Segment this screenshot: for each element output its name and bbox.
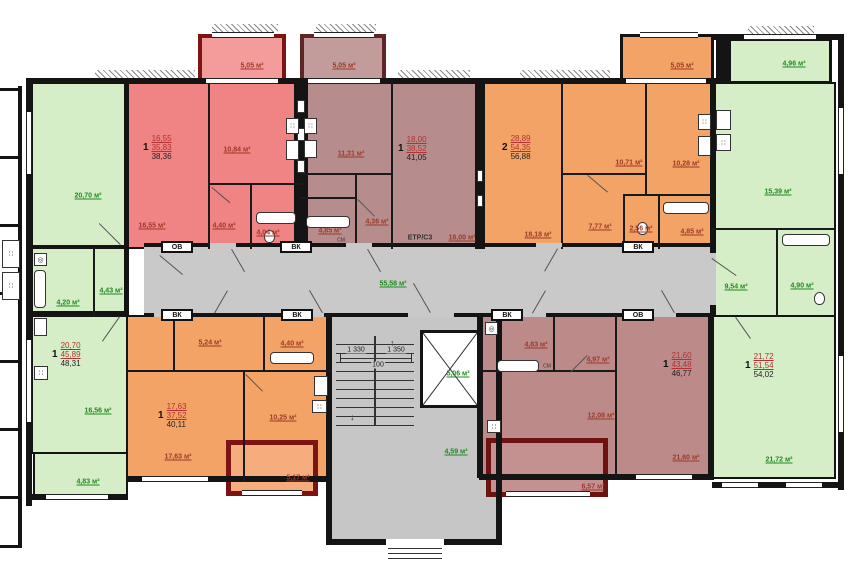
a6-bath-area: 4,83 м² <box>524 342 547 349</box>
wall <box>0 545 18 548</box>
window <box>838 108 844 174</box>
stair-arrow-down: ↓ <box>350 412 355 422</box>
wall <box>708 315 714 479</box>
bathtub-icon <box>256 212 296 224</box>
floor-plan: ↓ ↑ 1 330 1 350 100 ∷ ∷ ∷ ∷ ◎ <box>0 0 856 574</box>
washer-icon: ◎ <box>485 322 498 335</box>
rooms-count: 1 <box>745 360 751 372</box>
balcony-a3 <box>620 34 714 84</box>
fridge-icon <box>698 136 711 156</box>
window <box>26 112 32 174</box>
dimension-label: 1 350 <box>386 347 406 354</box>
a1-hall-area: 4,40 м² <box>212 223 235 230</box>
room-a4-balcony <box>33 452 128 500</box>
door-opening <box>536 243 562 247</box>
living-area: 28,89 <box>511 134 531 143</box>
a3-bath-area: 4,85 м² <box>680 229 703 236</box>
bathtub-icon <box>497 360 539 372</box>
stove-icon: ∷ <box>286 118 299 134</box>
summary-apartment-1: 1 16,55 35,83 38,36 <box>143 134 172 162</box>
riser-label-vk: ВК <box>491 309 523 321</box>
wall <box>0 496 18 499</box>
a3-balcony-area: 5,05 м² <box>670 63 693 70</box>
wall-hatch <box>520 70 610 78</box>
wall <box>716 38 730 84</box>
window <box>744 34 816 40</box>
living-area: 17,63 <box>167 402 187 411</box>
summary-apartment-7: 1 21,72 51,54 54,02 <box>745 352 774 380</box>
overall-area: 38,36 <box>152 152 172 161</box>
overall-area: 48,31 <box>61 359 81 368</box>
a1-living-area: 16,55 м² <box>139 223 166 230</box>
wall <box>26 245 126 249</box>
balcony-a7 <box>728 38 832 84</box>
window <box>640 32 698 38</box>
a7-room-area: 21,72 м² <box>766 457 793 464</box>
a5-bath-area: 4,40 м² <box>280 341 303 348</box>
toilet-icon <box>814 292 825 305</box>
rooms-count: 1 <box>143 142 149 154</box>
partition <box>623 194 714 196</box>
window <box>26 340 32 422</box>
a3-kitchen-area: 10,28 м² <box>673 161 700 168</box>
window <box>242 490 302 496</box>
window <box>626 78 706 84</box>
window <box>838 356 844 432</box>
a3-hall-area: 7,77 м² <box>588 224 611 231</box>
balcony-a1 <box>198 34 286 84</box>
stove-icon: ∷ <box>34 366 48 380</box>
total-area: 38,52 <box>407 144 427 153</box>
wall <box>26 311 126 315</box>
a7-bath-area: 4,90 м² <box>790 283 813 290</box>
partition <box>173 315 175 372</box>
riser-label-vk: ВК <box>281 309 313 321</box>
partition <box>615 315 617 478</box>
elevator-cross-icon <box>423 333 477 405</box>
rooms-count: 1 <box>663 359 669 371</box>
stove-icon: ∷ <box>312 400 327 413</box>
a4-balcony-area: 4,83 м² <box>76 479 99 486</box>
door-opening <box>408 313 454 317</box>
shaft-vent-icon <box>297 160 305 173</box>
entrance-opening <box>386 539 444 545</box>
total-area: 54,35 <box>511 143 531 152</box>
partition <box>561 82 563 249</box>
total-area: 37,52 <box>167 411 187 420</box>
elevator-shaft <box>420 330 480 408</box>
dimension-label: 100 <box>371 362 385 369</box>
partition <box>391 82 393 249</box>
window <box>308 78 380 84</box>
bathtub-icon <box>270 352 314 364</box>
wall-hatch <box>398 70 470 78</box>
dimension-tick <box>340 353 341 363</box>
corridor-area: 55,58 м² <box>380 281 407 288</box>
a1-kitchen-area: 10,84 м² <box>224 147 251 154</box>
bathtub-icon <box>34 270 46 308</box>
partition <box>561 173 647 175</box>
a2-balcony-area: 5,05 м² <box>332 63 355 70</box>
fridge-icon <box>286 140 299 160</box>
window <box>46 494 108 500</box>
sink-icon <box>34 318 47 336</box>
riser-label-vk: ВК <box>161 309 193 321</box>
a4-living-area: 20,70 м² <box>75 193 102 200</box>
entrance-step <box>388 548 442 549</box>
living-area: 20,70 <box>61 341 81 350</box>
wall-hatch <box>316 24 376 32</box>
a1-balcony-area: 5,05 м² <box>240 63 263 70</box>
riser-label-ov: ОВ <box>622 309 654 321</box>
corridor <box>144 245 714 317</box>
partition <box>645 82 647 196</box>
summary-apartment-3: 2 28,89 54,35 56,88 <box>502 134 531 162</box>
wall <box>0 224 18 227</box>
a7-hall-area: 9,54 м² <box>724 284 747 291</box>
a3-wc-area: 2,56 м² <box>629 226 652 233</box>
partition <box>776 230 778 317</box>
living-area: 16,55 <box>152 134 172 143</box>
window <box>786 482 822 488</box>
washer-icon: ◎ <box>34 253 47 266</box>
a4-bath-area: 4,20 м² <box>56 300 79 307</box>
shaft-column <box>475 82 485 249</box>
overall-area: 41,05 <box>407 153 427 162</box>
partition <box>126 370 332 372</box>
window <box>206 78 278 84</box>
riser-label-vk: ВК <box>622 241 654 253</box>
a6-kitchen-area: 12,08 м² <box>588 413 615 420</box>
utility-cell-icon: ∷ <box>2 272 20 300</box>
shaft-vent-icon <box>477 195 483 207</box>
door-opening <box>520 313 546 317</box>
a5-kitchen-area: 10,25 м² <box>270 415 297 422</box>
riser-label-vk: ВК <box>280 241 312 253</box>
living-area: 18,00 <box>407 135 427 144</box>
rooms-count: 1 <box>52 349 58 361</box>
summary-apartment-2: 1 18,00 38,52 41,05 <box>398 135 427 163</box>
living-area: 21,60 <box>672 351 692 360</box>
riser-label-ov: ОВ <box>161 241 193 253</box>
a2-bath-area: 4,85 м² <box>318 228 341 235</box>
a3-room1-area: 18,18 м² <box>525 232 552 239</box>
entrance-step <box>388 558 442 559</box>
door-opening <box>346 243 372 247</box>
a4-kitchen-area: 16,56 м² <box>85 408 112 415</box>
room-a4-living <box>31 82 128 249</box>
vestibule-area: 4,59 м² <box>444 449 467 456</box>
a2-living-area: 18,00 м² <box>449 235 476 242</box>
wall <box>124 78 129 317</box>
sink-icon <box>304 140 317 158</box>
overall-area: 46,77 <box>672 369 692 378</box>
total-area: 51,54 <box>754 361 774 370</box>
partition <box>208 82 210 249</box>
stove-icon: ∷ <box>698 114 711 130</box>
sm-label: СМ <box>337 239 345 244</box>
shaft-vent-icon <box>297 100 305 113</box>
wall-hatch <box>748 26 814 34</box>
a1-bath-area: 4,04 м² <box>256 230 279 237</box>
partition <box>712 228 836 230</box>
balcony-a2 <box>300 34 386 84</box>
wall <box>326 315 332 545</box>
partition <box>208 183 302 185</box>
partition <box>300 173 393 175</box>
etr-label: ЕТР/С3 <box>408 235 433 242</box>
partition <box>263 315 265 372</box>
partition <box>300 197 357 199</box>
living-area: 21,72 <box>754 352 774 361</box>
fridge-icon <box>314 376 328 396</box>
shaft-vent-icon <box>477 170 483 182</box>
partition <box>658 196 660 249</box>
bathtub-icon <box>782 234 830 246</box>
a6-hall-area: 4,97 м² <box>586 357 609 364</box>
partition <box>93 247 95 317</box>
a5-living-area: 17,63 м² <box>165 454 192 461</box>
a5-hall-area: 5,24 м² <box>198 340 221 347</box>
stair-divider <box>374 336 376 426</box>
wall <box>18 86 22 548</box>
stove-icon: ∷ <box>716 134 731 151</box>
overall-area: 54,02 <box>754 370 774 379</box>
window <box>722 482 758 488</box>
a7-living-area: 15,39 м² <box>765 189 792 196</box>
dimension-tick <box>411 353 412 363</box>
a3-room2-area: 10,71 м² <box>616 160 643 167</box>
a6-balcony-area: 6,57 м² <box>581 484 604 491</box>
partition <box>243 372 245 482</box>
window <box>142 476 208 482</box>
wall <box>0 88 18 91</box>
total-area: 43,48 <box>672 360 692 369</box>
wall <box>0 360 18 363</box>
wall <box>0 428 18 431</box>
a6-living-area: 21,60 м² <box>673 455 700 462</box>
a5-balcony-area: 5,17 м² <box>286 475 309 482</box>
wall <box>0 156 18 159</box>
window <box>506 491 590 497</box>
partition <box>553 315 555 372</box>
window <box>212 32 274 38</box>
dimension-label: 1 330 <box>346 347 366 354</box>
summary-apartment-4: 1 20,70 45,89 48,31 <box>52 341 81 369</box>
a2-hall-area: 4,36 м² <box>365 219 388 226</box>
bathtub-icon <box>663 202 709 214</box>
sm-label: СМ <box>543 365 551 370</box>
overall-area: 56,88 <box>511 152 531 161</box>
elevator-area: 5,06 м² <box>446 371 469 378</box>
total-area: 35,83 <box>152 143 172 152</box>
stove-icon: ∷ <box>304 118 317 134</box>
bathtub-icon <box>306 216 350 228</box>
window <box>636 474 692 480</box>
wall-hatch <box>95 70 195 78</box>
a7-balcony-area: 4,96 м² <box>782 61 805 68</box>
summary-apartment-5: 1 17,63 37,52 40,11 <box>158 402 187 430</box>
sink-icon <box>716 110 731 130</box>
door-opening <box>210 243 236 247</box>
partition <box>355 173 357 247</box>
dimension-line <box>340 358 412 359</box>
rooms-count: 2 <box>502 142 508 154</box>
overall-area: 40,11 <box>167 420 187 429</box>
rooms-count: 1 <box>158 410 164 422</box>
rooms-count: 1 <box>398 143 404 155</box>
summary-apartment-6: 1 21,60 43,48 46,77 <box>663 351 692 379</box>
utility-cell-icon: ∷ <box>2 240 20 268</box>
partition <box>250 183 252 249</box>
window <box>314 32 374 38</box>
wall-hatch <box>212 24 278 32</box>
balcony-a5 <box>226 440 318 496</box>
a4-hall-area: 4,43 м² <box>99 288 122 295</box>
a2-kitchen-area: 11,31 м² <box>338 151 365 158</box>
total-area: 45,89 <box>61 350 81 359</box>
stove-icon: ∷ <box>487 420 501 433</box>
entrance-step <box>388 553 442 554</box>
room-a7-living <box>712 315 836 479</box>
